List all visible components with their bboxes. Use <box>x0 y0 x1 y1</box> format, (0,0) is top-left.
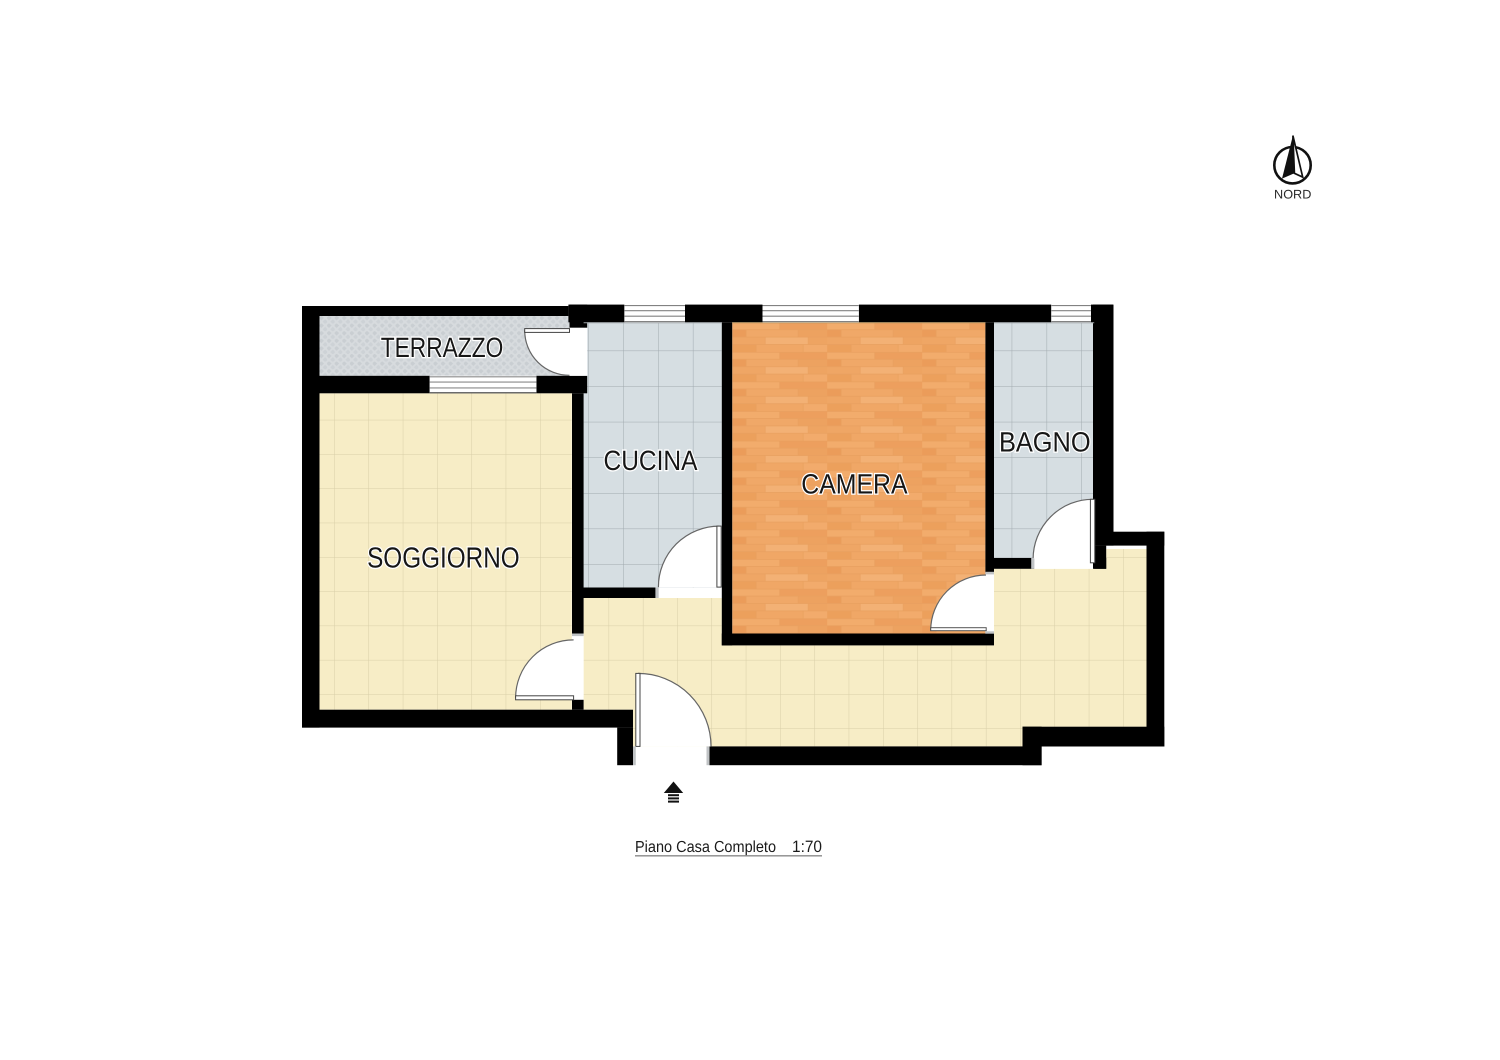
svg-text:CUCINA: CUCINA <box>604 445 698 476</box>
svg-text:SOGGIORNO: SOGGIORNO <box>367 542 520 574</box>
svg-text:CAMERA: CAMERA <box>801 469 907 500</box>
svg-text:1:70: 1:70 <box>792 838 822 856</box>
svg-text:BAGNO: BAGNO <box>999 426 1091 457</box>
svg-text:NORD: NORD <box>1274 188 1311 202</box>
svg-text:TERRAZZO: TERRAZZO <box>381 332 504 363</box>
svg-text:Piano Casa Completo: Piano Casa Completo <box>635 839 776 856</box>
